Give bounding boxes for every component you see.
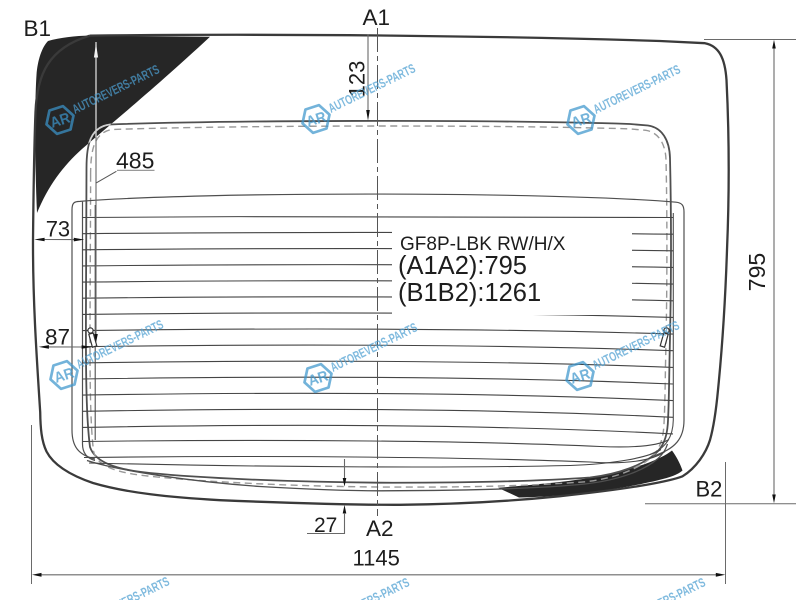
svg-text:B1: B1 <box>24 16 52 41</box>
svg-text:1145: 1145 <box>353 546 400 571</box>
svg-text:A2: A2 <box>366 516 394 541</box>
svg-text:795: 795 <box>744 253 770 291</box>
svg-text:(B1B2):1261: (B1B2):1261 <box>398 279 541 307</box>
svg-text:27: 27 <box>314 514 337 537</box>
svg-text:73: 73 <box>46 216 70 241</box>
svg-text:(A1A2):795: (A1A2):795 <box>398 252 527 280</box>
svg-text:B2: B2 <box>696 477 723 502</box>
svg-text:A1: A1 <box>363 5 391 30</box>
